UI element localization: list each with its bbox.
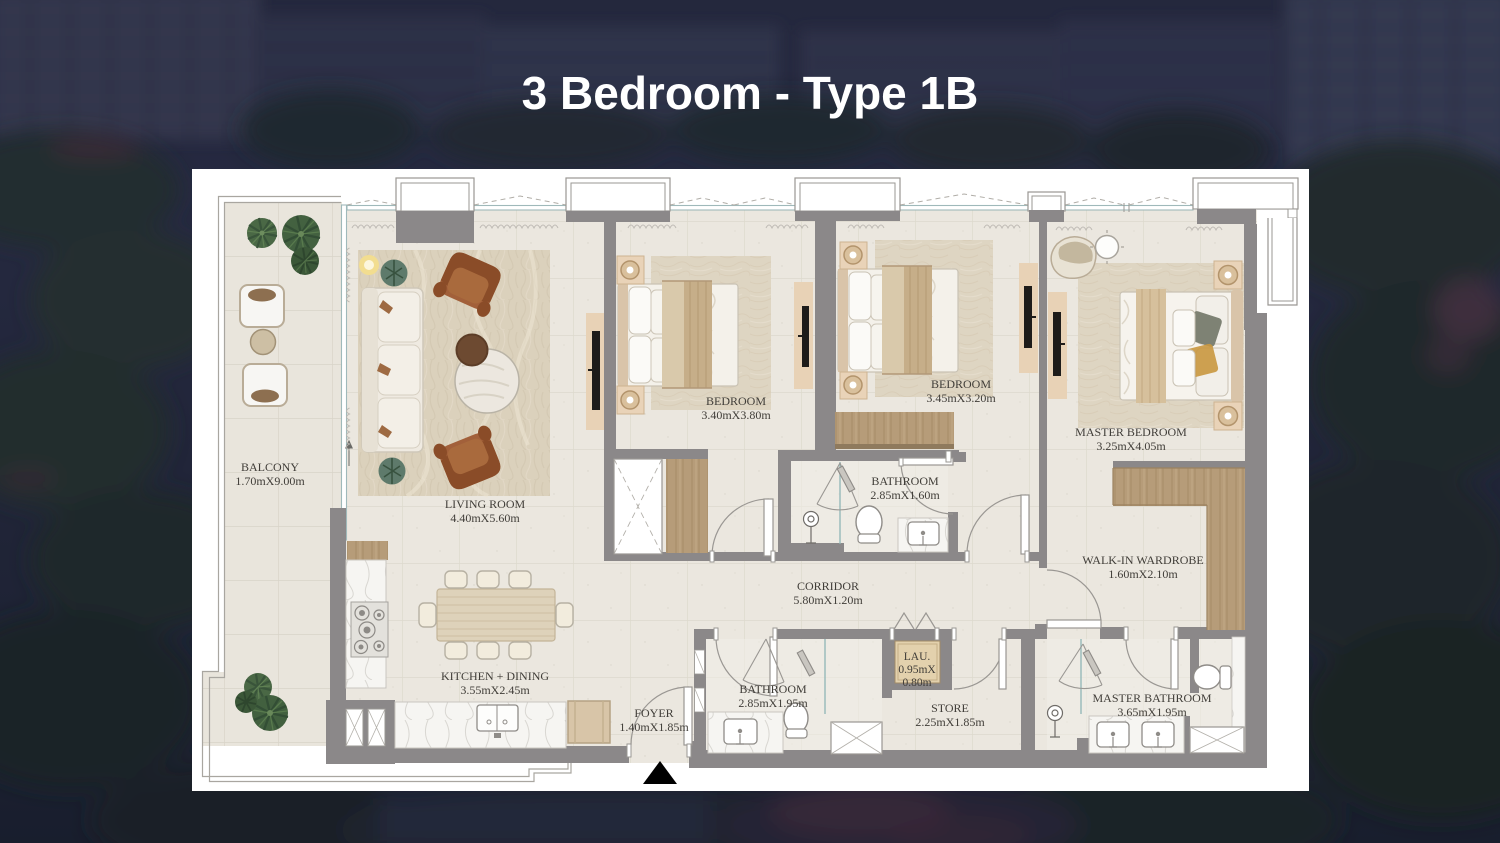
svg-text:STORE: STORE — [931, 701, 969, 715]
svg-text:KITCHEN + DINING: KITCHEN + DINING — [441, 669, 549, 683]
svg-text:LIVING ROOM: LIVING ROOM — [445, 497, 526, 511]
svg-text:BATHROOM: BATHROOM — [739, 682, 807, 696]
svg-text:3.65mX1.95m: 3.65mX1.95m — [1117, 705, 1187, 719]
svg-text:2.85mX1.60m: 2.85mX1.60m — [870, 488, 940, 502]
svg-text:2.25mX1.85m: 2.25mX1.85m — [915, 715, 985, 729]
svg-text:1.40mX1.85m: 1.40mX1.85m — [619, 720, 689, 734]
svg-text:BEDROOM: BEDROOM — [706, 394, 766, 408]
svg-text:FOYER: FOYER — [634, 706, 673, 720]
svg-text:1.60mX2.10m: 1.60mX2.10m — [1108, 567, 1178, 581]
svg-text:BATHROOM: BATHROOM — [871, 474, 939, 488]
svg-text:4.40mX5.60m: 4.40mX5.60m — [450, 511, 520, 525]
svg-text:LAU.: LAU. — [904, 651, 931, 663]
svg-text:3.40mX3.80m: 3.40mX3.80m — [701, 408, 771, 422]
svg-text:BALCONY: BALCONY — [241, 460, 299, 474]
svg-text:MASTER BATHROOM: MASTER BATHROOM — [1092, 691, 1211, 705]
svg-text:WALK-IN WARDROBE: WALK-IN WARDROBE — [1082, 553, 1203, 567]
svg-text:CORRIDOR: CORRIDOR — [797, 579, 859, 593]
svg-text:1.70mX9.00m: 1.70mX9.00m — [235, 474, 305, 488]
svg-text:MASTER BEDROOM: MASTER BEDROOM — [1075, 425, 1187, 439]
svg-text:BEDROOM: BEDROOM — [931, 377, 991, 391]
svg-text:3.45mX3.20m: 3.45mX3.20m — [926, 391, 996, 405]
svg-text:2.85mX1.95m: 2.85mX1.95m — [738, 696, 808, 710]
svg-text:0.95mX: 0.95mX — [898, 664, 936, 676]
svg-text:0.80m: 0.80m — [902, 677, 931, 689]
svg-text:5.80mX1.20m: 5.80mX1.20m — [793, 593, 863, 607]
svg-text:3.55mX2.45m: 3.55mX2.45m — [460, 683, 530, 697]
svg-text:3.25mX4.05m: 3.25mX4.05m — [1096, 439, 1166, 453]
